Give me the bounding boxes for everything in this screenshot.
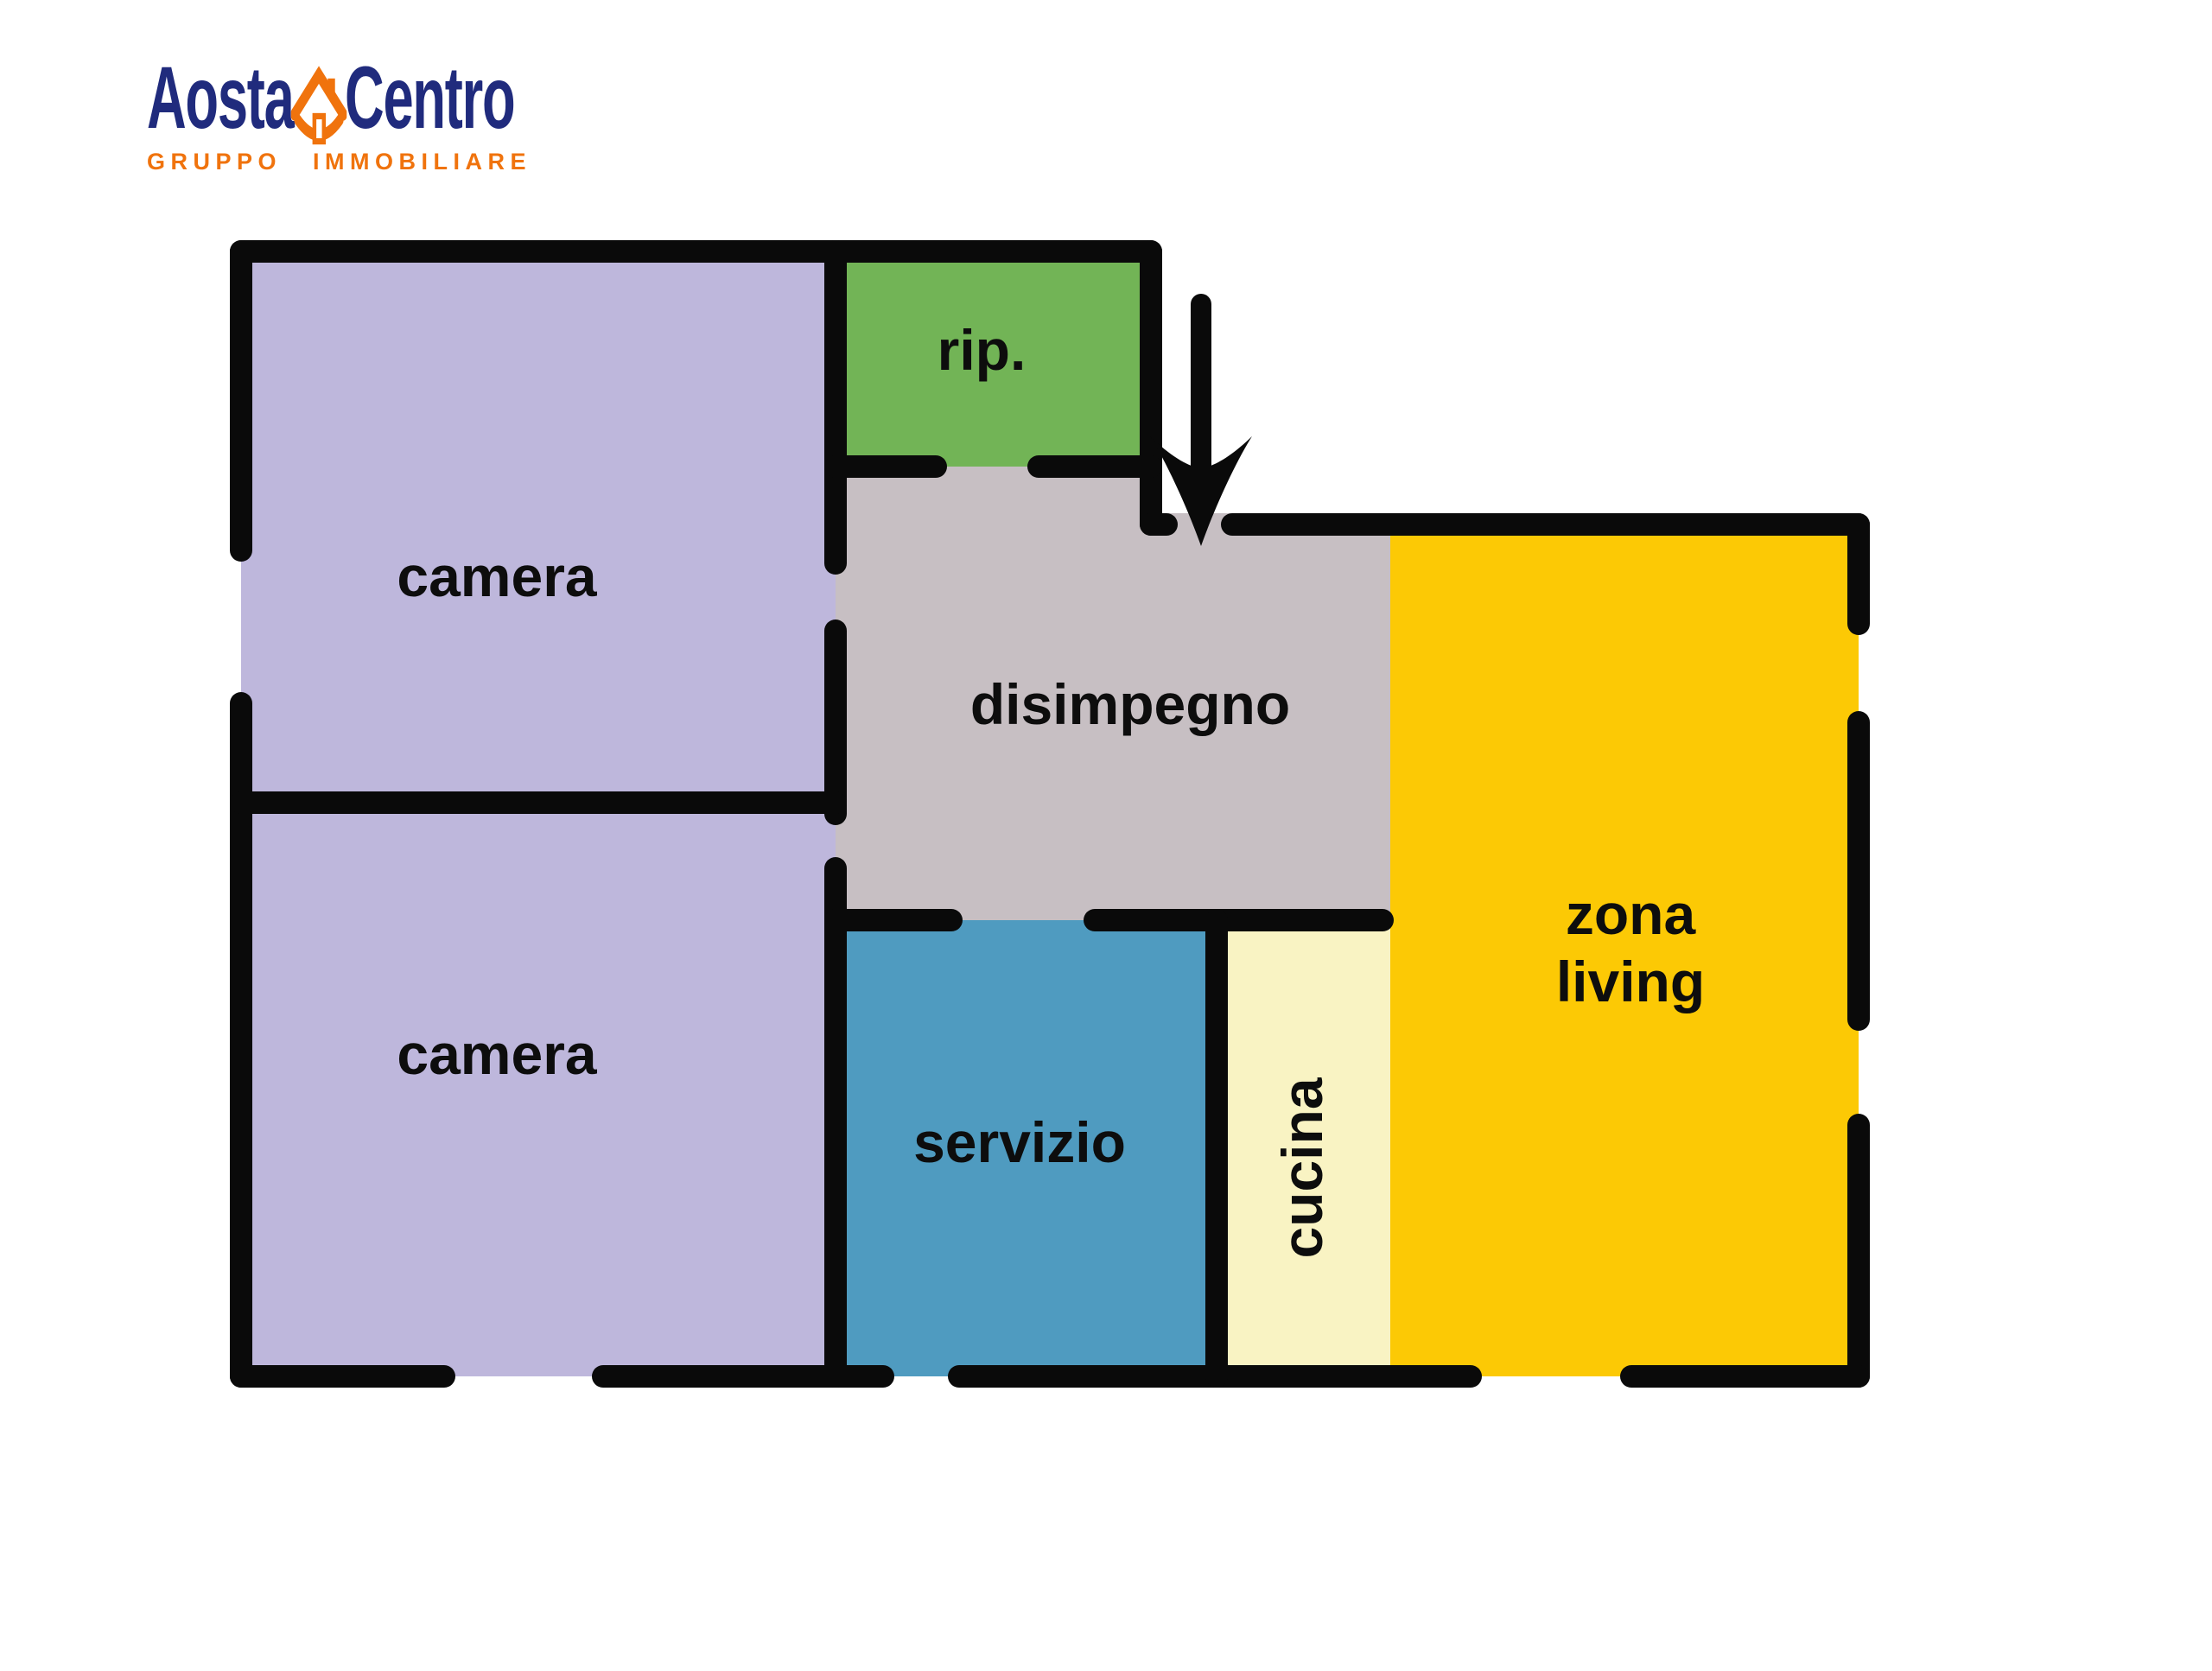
- label-ripostiglio: rip.: [938, 318, 1027, 382]
- room-camera-bottom: [241, 803, 836, 1376]
- label-zona-living-line1: zona: [1566, 882, 1697, 946]
- label-cucina: cucina: [1270, 1077, 1334, 1258]
- label-disimpegno: disimpegno: [970, 672, 1290, 736]
- entrance-arrow: [1150, 304, 1252, 546]
- label-camera-top: camera: [397, 544, 597, 608]
- label-servizio: servizio: [913, 1110, 1126, 1174]
- label-camera-bottom: camera: [397, 1022, 597, 1086]
- label-zona-living-line2: living: [1556, 950, 1705, 1013]
- room-camera-top: [241, 251, 836, 803]
- floor-plan: camera camera rip. disimpegno servizio c…: [0, 0, 2212, 1671]
